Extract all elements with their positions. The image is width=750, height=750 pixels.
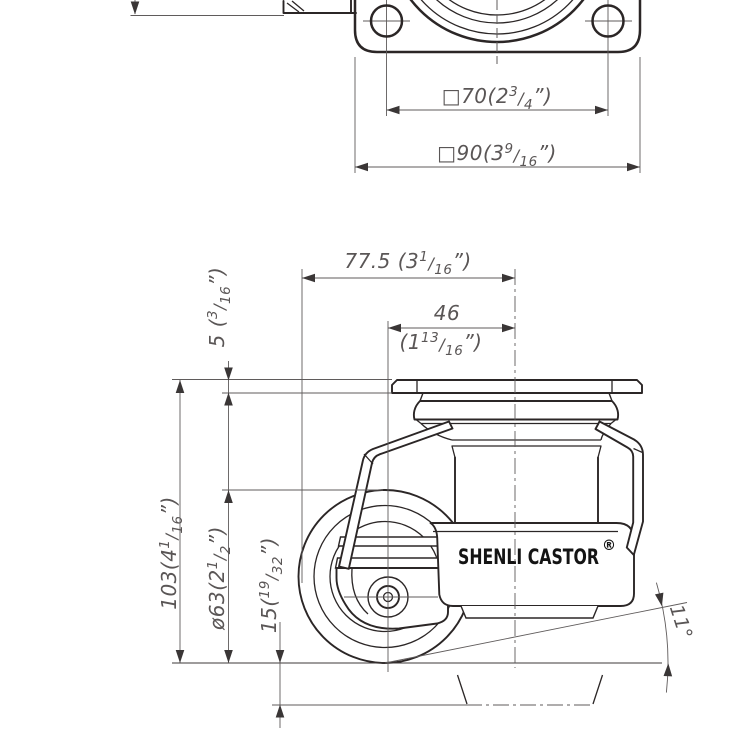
- dim-axle-offset-value: 46: [434, 301, 460, 325]
- caster-technical-drawing: □70(23/4”) □90(39/16”): [0, 0, 750, 750]
- arrowhead: [176, 380, 185, 393]
- arrowhead: [355, 163, 368, 172]
- dim-total-offset-label: 77.5 (31/16”): [344, 249, 471, 278]
- dim-wheel-diameter-label: ø63(21/2”): [205, 526, 234, 631]
- dim-plate-outer-label: □90(39/16”): [437, 141, 557, 170]
- arrowhead: [131, 2, 140, 15]
- arrowhead: [655, 593, 666, 608]
- bolt-hole-right: [585, 0, 632, 116]
- dim-lift-height-label: 15(19/32”): [257, 537, 286, 633]
- dim-plate-thickness-label: 5 (3/16”): [205, 267, 234, 348]
- caster-technical-drawing-page: □70(23/4”) □90(39/16”): [0, 0, 750, 750]
- dim-tilt-angle-label: 11°: [665, 602, 697, 642]
- top-view-dimensions: □70(23/4”) □90(39/16”): [131, 0, 641, 173]
- swivel-column: [414, 393, 618, 523]
- side-view: SHENLI CASTOR ®: [172, 380, 687, 704]
- arrowhead: [224, 650, 233, 663]
- registered-mark: ®: [602, 538, 616, 554]
- body-block: SHENLI CASTOR ®: [431, 523, 635, 618]
- brake-tab: [284, 0, 357, 13]
- arrowhead: [176, 650, 185, 663]
- arrowhead: [224, 368, 233, 381]
- body-bottom-step: [461, 606, 598, 618]
- arrowhead: [502, 324, 515, 333]
- arrowhead: [276, 650, 285, 663]
- dim-overall-height-label: 103(41/16”): [157, 496, 186, 610]
- arrowhead: [224, 490, 233, 503]
- arrowhead: [302, 274, 315, 283]
- arrowhead: [595, 106, 608, 115]
- arrowhead: [224, 393, 233, 406]
- brand-label: SHENLI CASTOR: [458, 545, 599, 569]
- arrowhead: [276, 705, 285, 718]
- arrowhead: [664, 663, 673, 676]
- arrowhead: [387, 106, 400, 115]
- arrowhead: [502, 274, 515, 283]
- dim-plate-inner-label: □70(23/4”): [442, 84, 553, 113]
- foot-pad: [458, 675, 603, 704]
- arrowhead: [627, 163, 640, 172]
- dim-axle-offset-label: (113/16”): [400, 330, 483, 359]
- top-plate-side-view: [392, 380, 642, 393]
- side-view-dimensions: 77.5 (31/16”) 46 (113/16”) 5 (3/16”) 103…: [157, 249, 697, 728]
- bolt-hole-left: [363, 0, 410, 116]
